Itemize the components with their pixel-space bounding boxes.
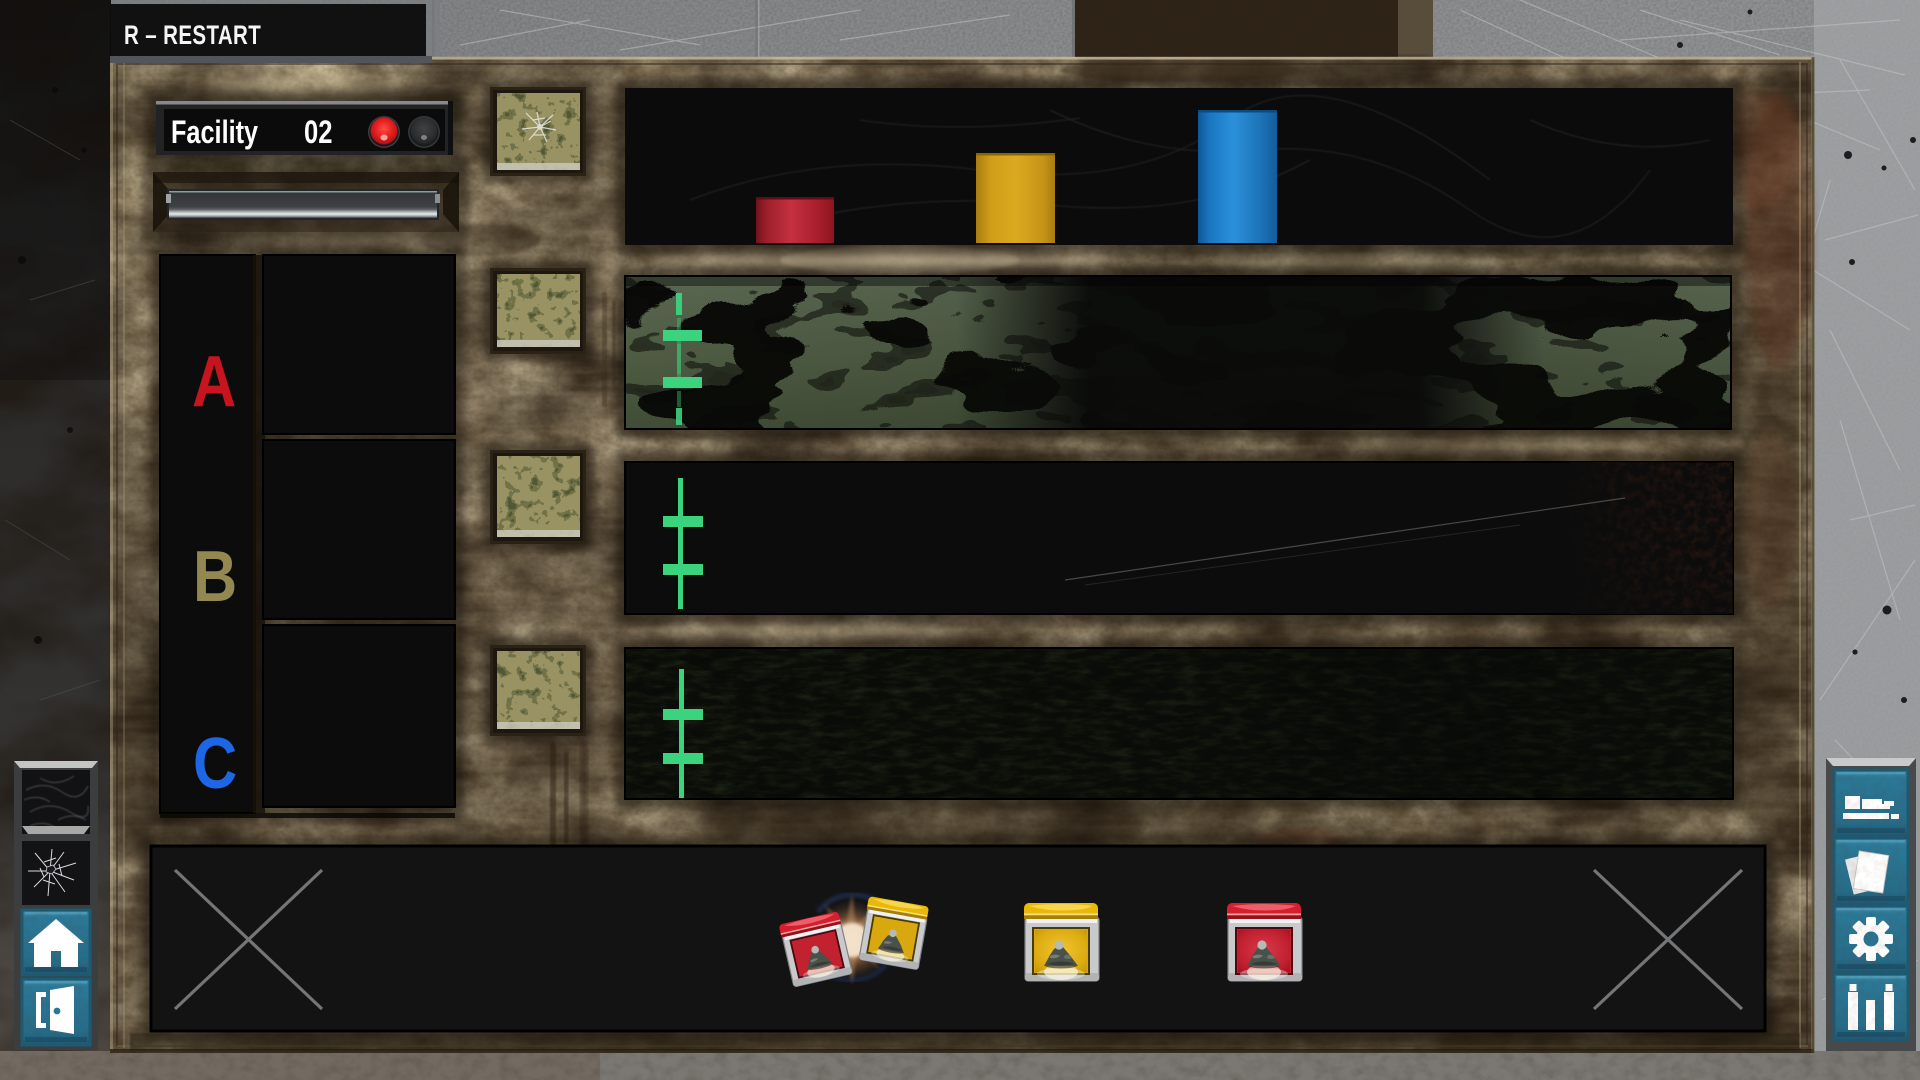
svg-text:C: C bbox=[193, 724, 237, 804]
svg-text:B: B bbox=[193, 537, 237, 617]
svg-text:Facility: Facility bbox=[171, 115, 258, 151]
svg-text:R – RESTART: R – RESTART bbox=[124, 20, 261, 50]
svg-text:02: 02 bbox=[304, 115, 332, 150]
svg-text:A: A bbox=[192, 342, 236, 422]
